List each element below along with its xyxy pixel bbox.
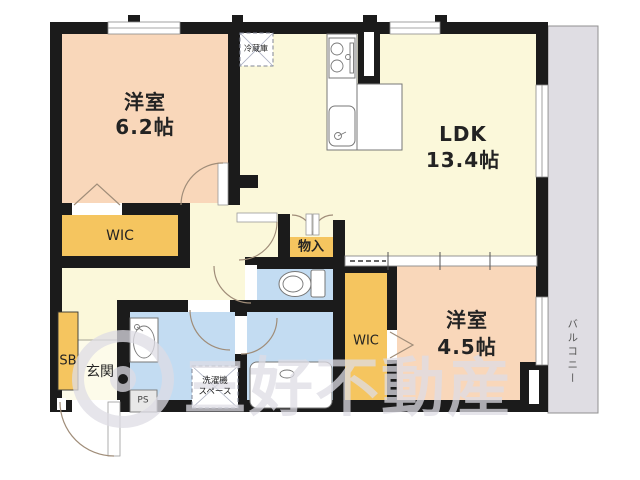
storage-label: 物入 [298,241,324,254]
sink-icon [329,106,355,146]
stove-icon [329,38,355,78]
bedroom1-name-label: 洋室 [124,92,166,112]
washer-space-label-1: 洗濯機 [202,377,228,386]
pipe-space-label: PS [137,397,148,406]
wic-right-label: WIC [353,335,379,348]
washer-space-label-2: スペース [199,388,232,397]
entrance-label: 玄関 [86,365,114,379]
ldk-size-label: 13.4帖 [426,150,500,170]
ldk-name-label: LDK [439,124,487,144]
bedroom2-size-label: 4.5帖 [437,337,496,357]
bedroom2-name-label: 洋室 [446,310,488,330]
shoe-box-label: SB [59,355,76,368]
vent-slot [57,398,66,410]
balcony-label: バルコニー [567,318,578,386]
toilet-icon [279,270,325,297]
bedroom1-size-label: 6.2帖 [115,117,174,137]
wic-left-label: WIC [106,229,134,243]
floorplan: 三好不動産 洋室 6.2帖 LDK 13.4帖 洋室 4.5帖 WIC WIC … [0,0,640,480]
refrigerator-label: 冷蔵庫 [244,45,268,53]
